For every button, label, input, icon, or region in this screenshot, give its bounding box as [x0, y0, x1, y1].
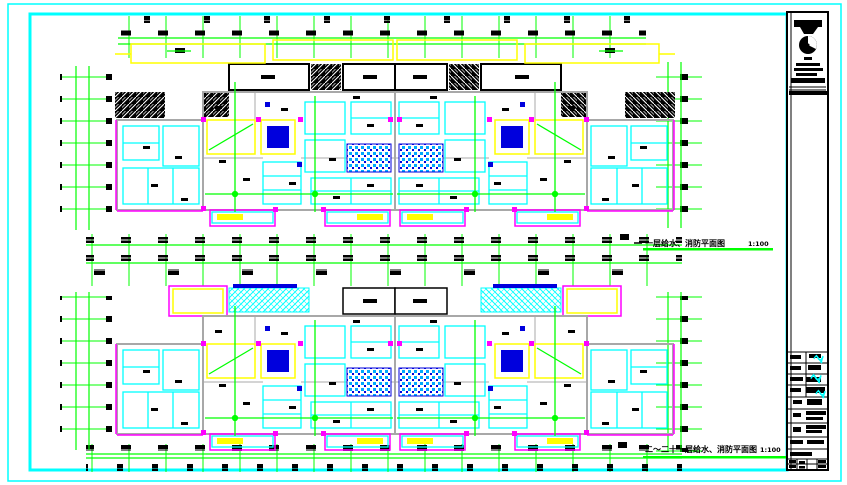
bottom-dimension-strip	[86, 444, 682, 472]
plan-scale-lower: 1:100	[760, 446, 781, 454]
cad-drawing-sheet: 一层给水、消防平面图 1:100 二～二十一层给水、消防平面图 1:100	[0, 0, 847, 485]
typical-floor-extras-left	[169, 284, 395, 316]
caption-underline	[643, 456, 793, 459]
middle-dimension-strip	[86, 234, 682, 286]
caption-tick	[618, 442, 627, 448]
floor-plan-upper	[115, 40, 675, 226]
title-block	[787, 12, 828, 470]
caption-lower: 二～二十一层给水、消防平面图 1:100	[618, 442, 793, 459]
floor-plan-lower	[116, 284, 674, 450]
tower-unit-right	[395, 306, 674, 450]
plan-title-upper: 一层给水、消防平面图	[645, 238, 725, 248]
plan-scale-upper: 1:100	[748, 240, 769, 248]
typical-floor-extras-right	[395, 284, 621, 316]
left-dimension-column-lower	[60, 292, 112, 450]
caption-underline	[643, 248, 773, 251]
caption-tick	[620, 234, 629, 240]
tower-unit-left	[116, 306, 395, 450]
plan-title-lower: 二～二十一层给水、消防平面图	[645, 444, 757, 454]
right-dimension-column-upper	[656, 62, 702, 228]
top-dimension-strip	[118, 16, 646, 58]
left-dimension-column-upper	[60, 66, 112, 230]
drawing-canvas: 一层给水、消防平面图 1:100 二～二十一层给水、消防平面图 1:100	[0, 0, 847, 485]
